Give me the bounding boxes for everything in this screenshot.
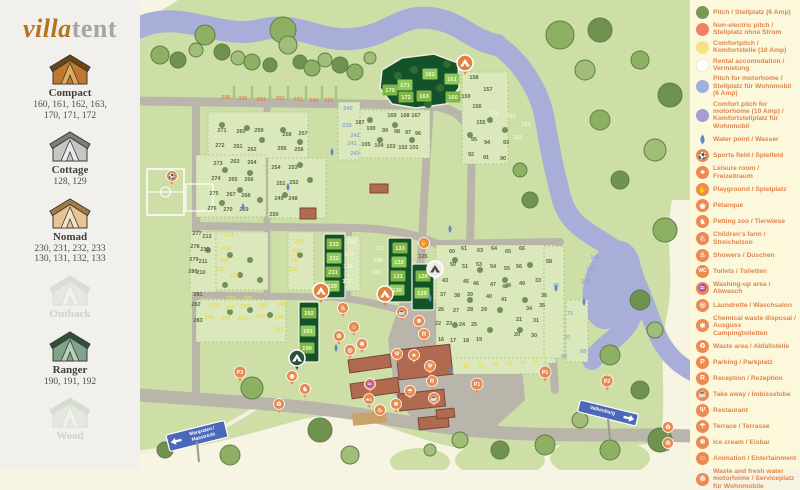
pitch-number: 13 xyxy=(506,361,512,367)
pitch-number: 53 xyxy=(476,262,482,268)
legend-label-showers: Showers / Duschen xyxy=(713,252,775,259)
pitch-number: 276 xyxy=(207,206,216,212)
tent-numbers-nomad: 230, 231, 232, 233 130, 131, 132, 133 xyxy=(34,244,105,265)
pitch-number: 199 xyxy=(258,303,267,309)
toilets-icon: WC xyxy=(696,265,709,278)
pitch-number: 51 xyxy=(462,264,468,270)
take-away-icon: ☕ xyxy=(696,388,709,401)
pitch-number: 66 xyxy=(519,246,525,252)
pitch-number: 18 xyxy=(463,338,469,344)
legend-item-reception: RReception / Rezeption xyxy=(696,372,797,385)
pitch-number: 90 xyxy=(500,156,506,162)
pitch-number: 205 xyxy=(243,296,252,302)
comfortpitch-icon xyxy=(696,41,709,54)
pitch-number: 25 xyxy=(471,322,477,328)
legend-label-animation: Animation / Entertainment xyxy=(713,455,796,462)
svg-text:P1: P1 xyxy=(542,370,549,376)
legend-item-comfort-motorhome-pitch: Comfort pitch for motorhome (10 Amp) / K… xyxy=(696,101,797,131)
pitch-number: 135 xyxy=(371,270,380,276)
tent-numbers-compact: 160, 161, 162, 163, 170, 171, 172 xyxy=(33,100,107,121)
pitch-number: 236 xyxy=(292,249,301,255)
svg-text:171: 171 xyxy=(400,83,410,89)
svg-text:172: 172 xyxy=(401,95,411,101)
legend-item-playground: ✋Playground / Spielplatz xyxy=(696,183,797,196)
pitch-number: 70 xyxy=(564,335,570,341)
legend-item-showers: ♨Showers / Duschen xyxy=(696,249,797,262)
pitch-number: 50 xyxy=(450,262,456,268)
pitch-number: 15 xyxy=(533,359,539,365)
washing-up-area-icon: ♒ xyxy=(696,282,709,295)
pitch-number: 17 xyxy=(450,338,456,344)
svg-text:♻: ♻ xyxy=(276,401,281,408)
tent-numbers-ranger: 190, 191, 192 xyxy=(44,377,96,388)
pitch-number: 42 xyxy=(502,284,508,290)
pitch-number: 215 xyxy=(221,246,230,252)
svg-text:☂: ☂ xyxy=(407,388,413,395)
legend-item-laundrette: ◎Laundrette / Waschsalon xyxy=(696,299,797,312)
pitch-number: 140 xyxy=(590,255,599,261)
outback-tent-icon xyxy=(47,275,93,307)
svg-text:✱: ✱ xyxy=(359,341,364,348)
pitch-number: 94 xyxy=(484,140,491,146)
pitch-number: 243 xyxy=(350,151,359,157)
pitch-number: 213 xyxy=(202,234,211,240)
svg-text:R: R xyxy=(430,379,435,385)
svg-text:163: 163 xyxy=(419,94,429,100)
svg-text:131: 131 xyxy=(393,274,403,280)
svg-text:190: 190 xyxy=(302,346,312,352)
legend-item-chemical-waste-disposal: ✱Chemical waste disposal / Ausguss Campi… xyxy=(696,315,797,337)
svg-text:◉: ◉ xyxy=(289,374,295,380)
svg-text:Ψ: Ψ xyxy=(395,352,400,358)
legend-label-pitch: Pitch / Stellplatz (6 Amp) xyxy=(713,9,791,16)
tent-name-ranger: Ranger xyxy=(44,365,96,375)
motorhome-service-icon: ✇ xyxy=(696,473,709,486)
svg-text:191: 191 xyxy=(303,329,313,335)
pitch-number: 31 xyxy=(533,318,539,324)
pitch-number: 34 xyxy=(526,306,533,312)
legend-item-washing-up-area: ♒Washing-up area / Abwasch xyxy=(696,281,797,296)
pitch-number: 64 xyxy=(491,246,498,252)
svg-text:⚽: ⚽ xyxy=(167,172,176,180)
legend-item-sports-field: ⚽Sports field / Spielfeld xyxy=(696,149,797,162)
svg-text:◎: ◎ xyxy=(347,348,353,354)
pitch-number: 29 xyxy=(481,307,487,313)
sports-field-icon: ⚽ xyxy=(696,149,709,162)
pitch-number: 277 xyxy=(192,231,201,237)
legend-label-petanque: Pétanque xyxy=(713,202,743,209)
legend-item-terrace: ☂Terrace / Terrasse xyxy=(696,420,797,433)
pitch-icon xyxy=(696,6,709,19)
pitch-number: 265 xyxy=(228,177,237,183)
waste-area-icon: ♻ xyxy=(696,340,709,353)
svg-text:128: 128 xyxy=(418,274,428,280)
svg-text:R: R xyxy=(422,332,427,338)
svg-text:170: 170 xyxy=(385,88,395,94)
pitch-number: 218 xyxy=(229,273,238,279)
logo-tent: tent xyxy=(72,14,117,43)
pitch-number: 259 xyxy=(254,128,263,134)
non-electric-pitch-icon xyxy=(696,23,709,36)
pitch-number: 151 xyxy=(513,135,522,141)
legend-label-parking: Parking / Parkplatz xyxy=(713,359,773,366)
pitch-number: 14 xyxy=(520,360,527,366)
svg-text:☺: ☺ xyxy=(351,325,357,331)
pitch-number: 65 xyxy=(505,249,511,255)
building xyxy=(300,208,316,219)
legend-label-playground: Playground / Spielplatz xyxy=(713,186,787,193)
tent-type-list: Compact160, 161, 162, 163, 170, 171, 172… xyxy=(33,54,107,443)
legend-label-comfortpitch: Comfortpitch / Komfortstelle (10 Amp) xyxy=(713,40,797,55)
pitch-number: 39 xyxy=(467,292,473,298)
parking-icon: P xyxy=(696,356,709,369)
pitch-number: 235 xyxy=(294,239,303,245)
pitch-number: 178 xyxy=(343,264,352,270)
legend-label-reception: Reception / Rezeption xyxy=(713,375,783,382)
svg-text:♣: ♣ xyxy=(412,353,416,359)
pitch-number: 187 xyxy=(355,120,364,126)
pitch-number: 263 xyxy=(230,159,239,165)
tent-type-cottage: Cottage128, 129 xyxy=(47,131,93,188)
playground-icon: ✋ xyxy=(696,183,709,196)
legend-item-motorhome-pitch: Pitch for motorhome / Stellplatz für Woh… xyxy=(696,75,797,97)
legend-label-laundrette: Laundrette / Waschsalon xyxy=(713,302,792,309)
svg-text:♒: ♒ xyxy=(366,380,374,388)
pitch-number: 30 xyxy=(531,333,537,339)
legend-label-comfort-motorhome-pitch: Comfort pitch for motorhome (10 Amp) / K… xyxy=(713,101,797,131)
pitch-number: 274 xyxy=(211,176,221,182)
pitch-number: 296 xyxy=(221,95,230,101)
tent-type-ranger: Ranger190, 191, 192 xyxy=(44,331,96,388)
pitch-number: 35 xyxy=(539,303,545,309)
pitch-number: 282 xyxy=(191,302,200,308)
pitch-number: 250 xyxy=(269,212,278,218)
villatent-logo: villatent xyxy=(23,14,117,44)
svg-text:WC: WC xyxy=(366,397,373,402)
pitch-number: 179 xyxy=(344,252,353,258)
reception-icon: R xyxy=(696,372,709,385)
svg-text:❄: ❄ xyxy=(393,401,398,408)
pitch-number: 12 xyxy=(492,362,498,368)
pitch-number: 60 xyxy=(449,249,455,255)
legend-label-non-electric-pitch: Non-electric pitch / Stellplatz ohne Str… xyxy=(713,22,797,37)
pitch-number: 58 xyxy=(546,259,552,265)
pitch-number: 61 xyxy=(461,246,467,252)
legend-item-toilets: WCToilets / Toiletten xyxy=(696,265,797,278)
pitch-number: 99 xyxy=(382,128,388,134)
pitch-number: 10 xyxy=(463,364,469,370)
legend-item-animation: ☺Animation / Entertainment xyxy=(696,452,797,465)
legend-label-restaurant: Restaurant xyxy=(713,407,748,414)
campsite-map-page: villatent Compact160, 161, 162, 163, 170… xyxy=(0,0,800,470)
legend-item-waste-area: ♻Waste area / Abfallstelle xyxy=(696,340,797,353)
pitch-number: 154 xyxy=(489,111,499,117)
pitch-number: 275 xyxy=(209,191,218,197)
nomad-tent-icon xyxy=(47,198,93,230)
pitch-number: 204 xyxy=(209,303,219,309)
legend-item-parking: PParking / Parkplatz xyxy=(696,356,797,369)
legend-item-childrens-farm: ♘Children's farm / Streichelzoo xyxy=(696,231,797,246)
pitch-number: 177 xyxy=(342,279,351,285)
map-canvas: 1701711721621631611602332322312301331321… xyxy=(140,0,690,470)
pitch-number: 157 xyxy=(483,87,492,93)
pitch-number: 198 xyxy=(274,315,283,321)
legend-item-take-away: ☕Take away / Imbissstube xyxy=(696,388,797,401)
pitch-number: 20 xyxy=(514,332,520,338)
pitch-number: 256 xyxy=(294,147,303,153)
ranger-tent-icon xyxy=(47,331,93,363)
pitch-number: 251 xyxy=(276,181,285,187)
pitch-number: 194 xyxy=(274,327,284,333)
legend-label-toilets: Toilets / Toiletten xyxy=(713,268,767,275)
pitch-number: 283 xyxy=(193,318,202,324)
legend-label-water-point: Water point / Wasser xyxy=(713,136,779,143)
pitch-number: 40 xyxy=(486,294,492,300)
svg-text:Ψ: Ψ xyxy=(428,364,433,370)
restaurant-icon: Ψ xyxy=(696,404,709,417)
pitch-number: 92 xyxy=(468,152,474,158)
svg-text:132: 132 xyxy=(394,260,404,266)
map-legend: Pitch / Stellplatz (6 Amp)Non-electric p… xyxy=(690,0,800,470)
svg-text:☕: ☕ xyxy=(398,308,406,316)
legend-label-terrace: Terrace / Terrasse xyxy=(713,423,770,430)
pitch-number: 261 xyxy=(233,144,242,150)
tent-name-outback: Outback xyxy=(47,309,93,319)
pitch-number: 16 xyxy=(438,337,444,343)
legend-item-non-electric-pitch: Non-electric pitch / Stellplatz ohne Str… xyxy=(696,22,797,37)
svg-text:P3: P3 xyxy=(237,370,244,376)
pitch-number: 155 xyxy=(476,120,485,126)
pitch-number: 137 xyxy=(375,246,384,252)
pitch-number: 281 xyxy=(193,292,202,298)
rental-accomodation-icon xyxy=(696,59,709,72)
pitch-number: 210 xyxy=(196,270,205,276)
pitch-number: 136 xyxy=(373,258,382,264)
pitch-number: 201 xyxy=(238,316,247,322)
pitch-number: 294 xyxy=(256,97,266,103)
pitch-number: 159 xyxy=(461,94,470,100)
pitch-number: 295 xyxy=(238,96,247,102)
pitch-number: 24 xyxy=(459,322,466,328)
svg-text:♨: ♨ xyxy=(377,407,382,414)
pitch-number: 169 xyxy=(387,113,396,119)
svg-text:161: 161 xyxy=(447,77,457,83)
tent-numbers-cottage: 128, 129 xyxy=(47,177,93,188)
pitch-number: 262 xyxy=(247,147,256,153)
svg-text:231: 231 xyxy=(328,270,338,276)
legend-label-take-away: Take away / Imbissstube xyxy=(713,391,791,398)
legend-item-motorhome-service: ✇Waste and fresh water motorhome / Servi… xyxy=(696,468,797,490)
pitch-number: 96 xyxy=(415,131,421,137)
pitch-number: 195 xyxy=(277,302,286,308)
childrens-farm-icon: ♘ xyxy=(696,232,709,245)
tent-name-compact: Compact xyxy=(33,88,107,98)
petting-zoo-icon: ♞ xyxy=(696,215,709,228)
pitch-number: 139 xyxy=(586,267,595,273)
pitch-number: 291 xyxy=(309,98,318,104)
pitch-number: 290 xyxy=(324,98,333,104)
pitch-number: 37 xyxy=(440,292,446,298)
pitch-number: 54 xyxy=(490,264,497,270)
svg-text:☕: ☕ xyxy=(430,394,438,402)
sidebar-tent-types: villatent Compact160, 161, 162, 163, 170… xyxy=(0,0,140,470)
svg-text:232: 232 xyxy=(329,256,339,262)
pitch-number: 216 xyxy=(219,258,228,264)
building xyxy=(436,408,455,419)
pitch-number: 153 xyxy=(506,114,515,120)
pitch-number: 63 xyxy=(477,248,483,254)
pitch-number: 102 xyxy=(398,145,407,151)
pitch-number: 200 xyxy=(256,314,265,320)
pitch-number: 28 xyxy=(467,307,473,313)
pitch-number: 168 xyxy=(400,113,409,119)
pitch-number: 207 xyxy=(225,306,234,312)
logo-villa: villa xyxy=(23,14,72,43)
pitch-number: 97 xyxy=(405,130,411,136)
pitch-number: 202 xyxy=(221,316,230,322)
pitch-number: 93 xyxy=(503,140,509,146)
tent-name-wood: Wood xyxy=(47,431,93,441)
legend-item-petanque: ◉Pétanque xyxy=(696,199,797,212)
pitch-number: 273 xyxy=(213,161,222,167)
pitch-number: 242 xyxy=(350,133,359,139)
pitch-number: 260 xyxy=(236,129,245,135)
pitch-number: 271 xyxy=(217,128,226,134)
legend-label-rental-accomodation: Rental accomodation / Vermietung xyxy=(713,58,797,73)
tent-type-wood: Wood xyxy=(47,397,93,443)
pitch-number: 138 xyxy=(581,279,590,285)
pitch-number: 38 xyxy=(454,293,460,299)
chemical-waste-disposal-icon: ✱ xyxy=(696,319,709,332)
legend-label-ice-cream: Ice cream / Eisbar xyxy=(713,439,770,446)
legend-label-childrens-farm: Children's farm / Streichelzoo xyxy=(713,231,797,246)
legend-item-leisure-room: ♣Leisure room / Freizeitraum xyxy=(696,165,797,180)
pitch-number: 101 xyxy=(409,145,418,151)
pitch-number: 268 xyxy=(241,193,250,199)
pitch-number: 214 xyxy=(224,233,234,239)
pitch-number: 258 xyxy=(282,132,291,138)
pitch-number: 272 xyxy=(215,143,224,149)
svg-text:133: 133 xyxy=(395,246,405,252)
svg-text:P2: P2 xyxy=(604,379,611,385)
pitch-number: 255 xyxy=(277,146,286,152)
pitch-number: 47 xyxy=(490,282,496,288)
comfort-motorhome-pitch-icon xyxy=(696,109,709,122)
pitch-number: 206 xyxy=(226,296,235,302)
pitch-number: 19 xyxy=(476,337,482,343)
pitch-number: 152 xyxy=(521,122,530,128)
building xyxy=(370,184,388,193)
pitch-number: 254 xyxy=(271,165,281,171)
pitch-number: 237 xyxy=(290,258,299,264)
pitch-number: 292 xyxy=(293,97,302,103)
pitch-number: 248 xyxy=(288,196,297,202)
svg-text:✋: ✋ xyxy=(420,239,427,247)
pitch-number: 95 xyxy=(471,137,477,143)
legend-item-pitch: Pitch / Stellplatz (6 Amp) xyxy=(696,6,797,19)
pitch-number: 56 xyxy=(516,264,522,270)
building xyxy=(396,344,453,379)
pitch-number: 238 xyxy=(288,267,297,273)
svg-text:162: 162 xyxy=(425,72,435,78)
svg-text:192: 192 xyxy=(304,311,314,317)
pitch-number: 208 xyxy=(204,315,213,321)
tent-name-nomad: Nomad xyxy=(34,232,105,242)
pitch-number: 217 xyxy=(216,267,225,273)
legend-label-motorhome-pitch: Pitch for motorhome / Stellplatz für Woh… xyxy=(713,75,797,97)
pitch-number: 158 xyxy=(469,75,478,81)
pitch-number: 211 xyxy=(199,259,208,265)
water-drop-icon xyxy=(696,133,709,146)
svg-text:♻: ♻ xyxy=(665,424,670,431)
animation-icon: ☺ xyxy=(696,452,709,465)
pitch-number: 278 xyxy=(190,244,199,250)
pitch-number: 36 xyxy=(541,293,547,299)
petanque-icon: ◉ xyxy=(696,199,709,212)
pitch-number: 180 xyxy=(347,239,356,245)
pitch-number: 267 xyxy=(226,192,235,198)
legend-label-leisure-room: Leisure room / Freizeitraum xyxy=(713,165,797,180)
pitch-number: 91 xyxy=(483,155,489,161)
pitch-number: 253 xyxy=(288,165,297,171)
compact-tent-icon xyxy=(47,54,93,86)
pitch-number: 105 xyxy=(361,142,370,148)
legend-label-motorhome-service: Waste and fresh water motorhome / Servic… xyxy=(713,468,797,490)
legend-label-waste-area: Waste area / Abfallstelle xyxy=(713,343,789,350)
pitch-number: 104 xyxy=(374,143,384,149)
pitch-number: 100 xyxy=(366,126,375,132)
pitch-number: 43 xyxy=(442,278,448,284)
pitch-number: 249 xyxy=(274,196,283,202)
svg-text:♨: ♨ xyxy=(340,305,345,312)
pitch-number: 23 xyxy=(446,321,452,327)
pitch-number: 212 xyxy=(200,247,209,253)
legend-label-sports-field: Sports field / Spielfeld xyxy=(713,152,783,159)
legend-item-rental-accomodation: Rental accomodation / Vermietung xyxy=(696,58,797,73)
pitch-number: 11 xyxy=(478,363,484,369)
pitch-number: 239 xyxy=(342,123,351,129)
pitch-number: 27 xyxy=(453,308,459,314)
pitch-number: 270 xyxy=(223,207,232,213)
svg-text:♻: ♻ xyxy=(336,333,341,340)
legend-item-petting-zoo: ♞Petting zoo / Tierwiese xyxy=(696,215,797,228)
pitch-number: 46 xyxy=(473,281,479,287)
motorhome-pitch-icon xyxy=(696,80,709,93)
legend-item-restaurant: ΨRestaurant xyxy=(696,404,797,417)
pitch-number: 22 xyxy=(435,321,441,327)
svg-text:❄: ❄ xyxy=(416,318,421,325)
showers-icon: ♨ xyxy=(696,249,709,262)
pitch-number: 26 xyxy=(438,307,444,313)
svg-text:✇: ✇ xyxy=(665,440,670,447)
pitch-number: 98 xyxy=(394,129,400,135)
laundrette-icon: ◎ xyxy=(696,299,709,312)
legend-label-chemical-waste-disposal: Chemical waste disposal / Ausguss Campin… xyxy=(713,315,797,337)
svg-text:129: 129 xyxy=(417,291,427,297)
campsite-map: 1701711721621631611602332322312301331321… xyxy=(140,0,690,470)
svg-text:P1: P1 xyxy=(474,382,481,388)
pitch-number: 21 xyxy=(516,317,522,323)
pitch-number: 252 xyxy=(289,180,298,186)
tent-type-compact: Compact160, 161, 162, 163, 170, 171, 172 xyxy=(33,54,107,121)
pitch-number: 68 xyxy=(580,349,586,355)
terrace-icon: ☂ xyxy=(696,420,709,433)
pitch-number: 264 xyxy=(247,160,257,166)
svg-text:160: 160 xyxy=(448,95,458,101)
pitch-number: 279 xyxy=(189,257,198,263)
pitch-number: 103 xyxy=(386,144,395,150)
ice-cream-icon: ❄ xyxy=(696,436,709,449)
